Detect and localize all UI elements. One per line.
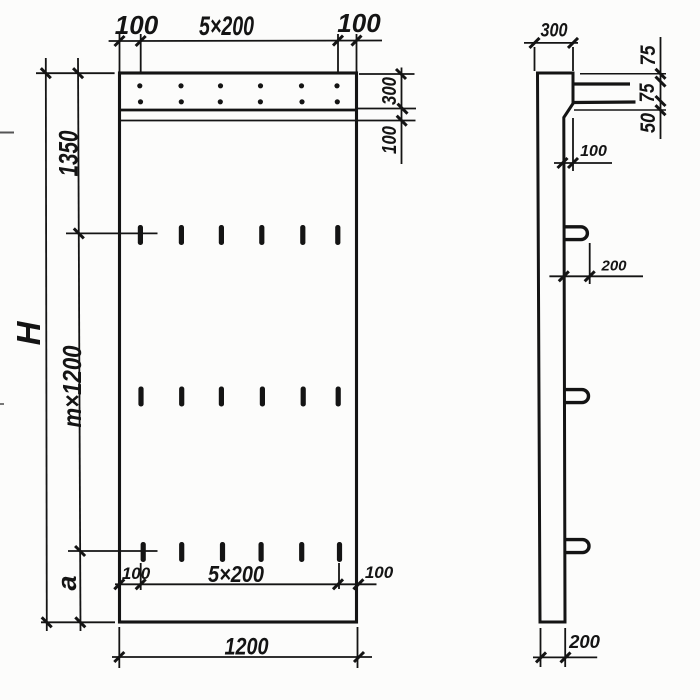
svg-text:100: 100 xyxy=(122,564,151,583)
svg-text:100: 100 xyxy=(379,126,401,154)
svg-text:75: 75 xyxy=(637,45,660,65)
svg-text:200: 200 xyxy=(568,631,601,652)
svg-text:a: a xyxy=(52,575,82,590)
svg-text:5×200: 5×200 xyxy=(199,11,254,41)
svg-text:50: 50 xyxy=(637,113,660,133)
svg-text:1350: 1350 xyxy=(54,131,84,177)
svg-text:100: 100 xyxy=(580,143,607,160)
svg-text:H: H xyxy=(10,320,47,345)
svg-text:1200: 1200 xyxy=(225,634,270,661)
svg-text:m×1200: m×1200 xyxy=(57,345,87,427)
svg-text:200: 200 xyxy=(601,258,628,275)
svg-text:300: 300 xyxy=(541,21,568,42)
svg-text:5×200: 5×200 xyxy=(208,561,264,587)
svg-text:100: 100 xyxy=(115,10,159,40)
svg-text:100: 100 xyxy=(337,8,381,38)
svg-text:100: 100 xyxy=(365,563,394,582)
svg-text:300: 300 xyxy=(379,77,401,105)
svg-text:75: 75 xyxy=(636,83,659,102)
